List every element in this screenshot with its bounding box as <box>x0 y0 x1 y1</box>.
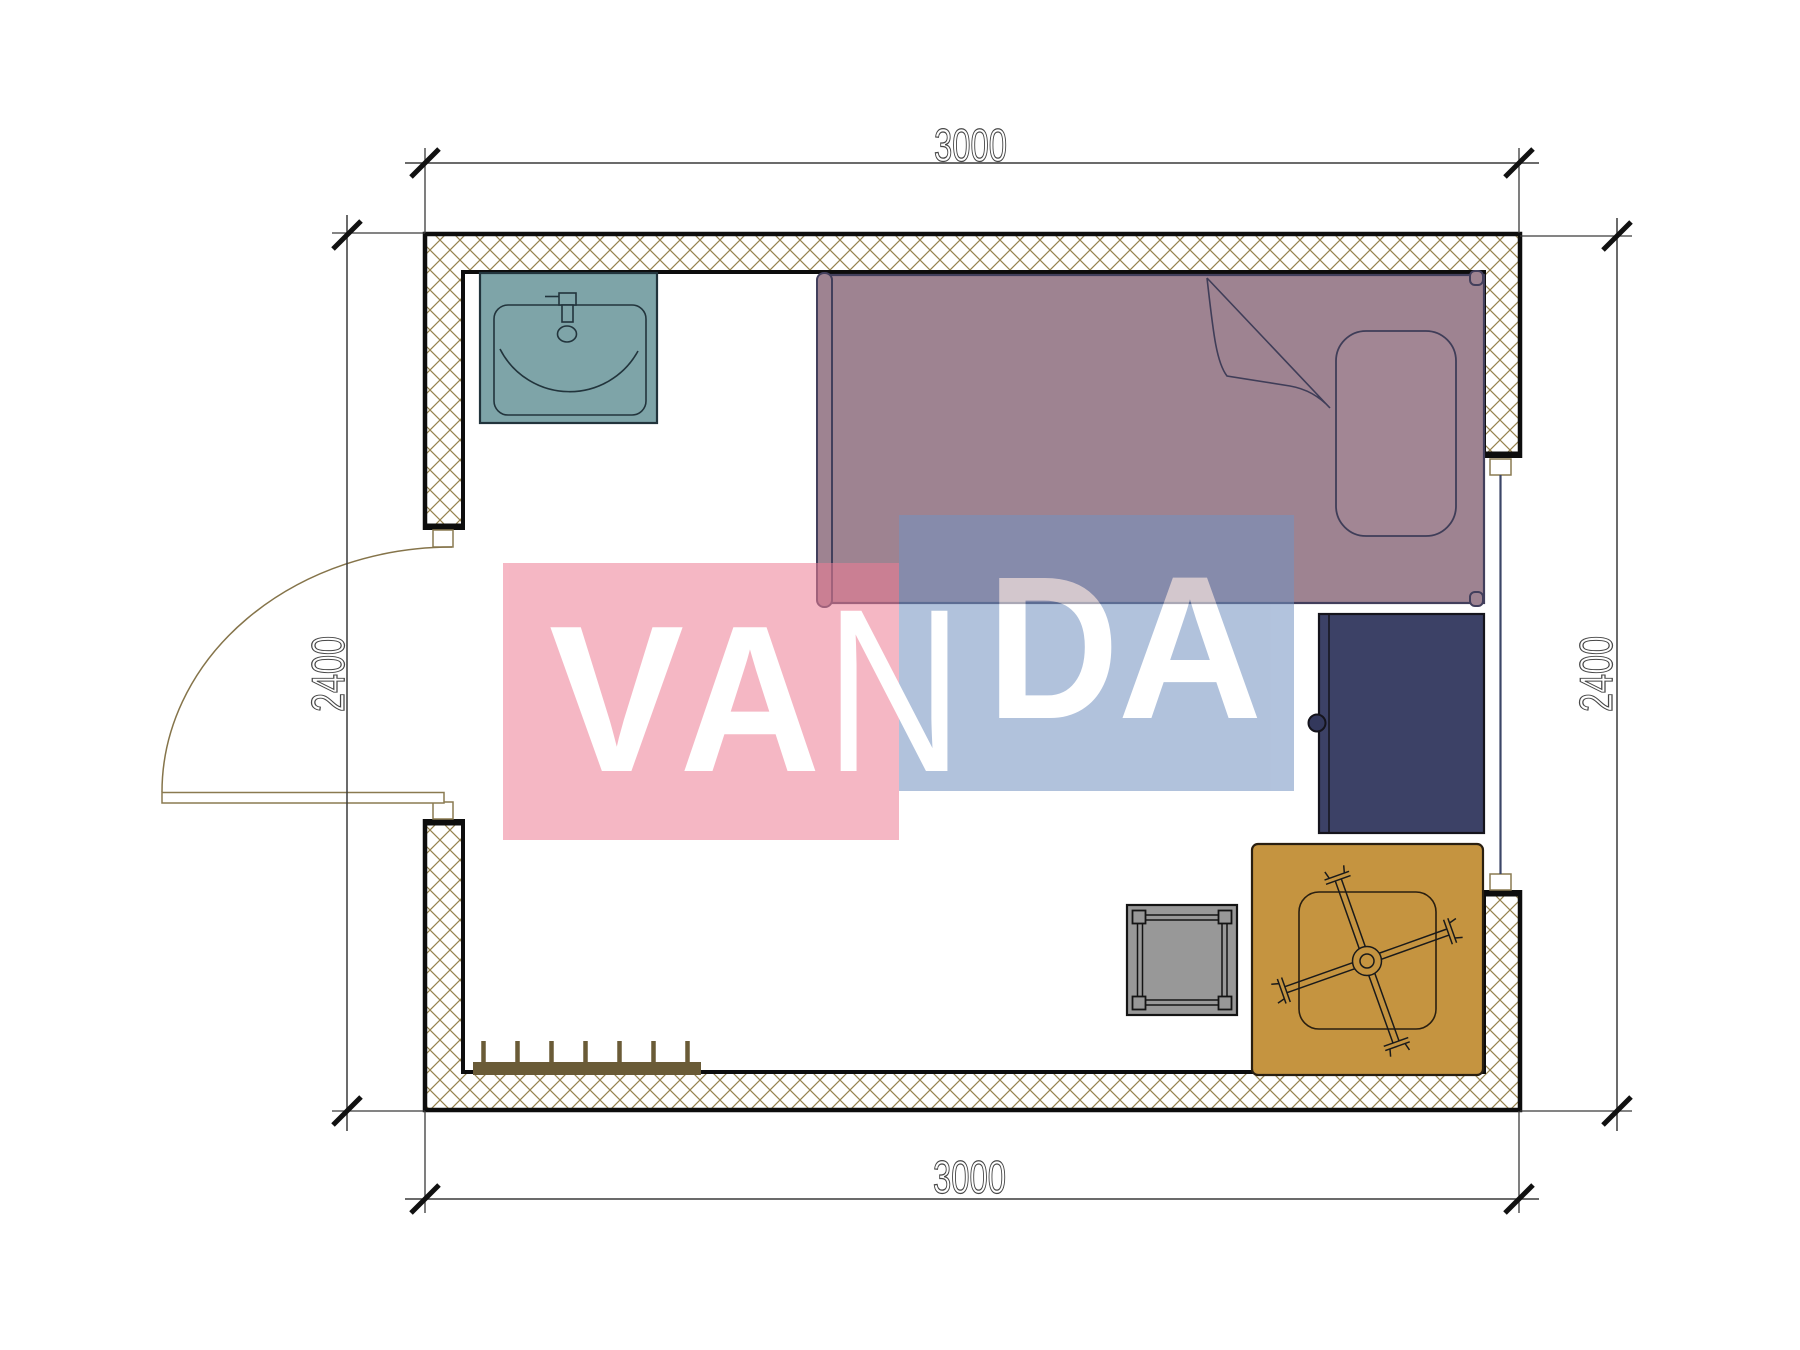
svg-text:3000: 3000 <box>934 119 1007 171</box>
svg-text:N: N <box>825 561 963 821</box>
svg-text:A: A <box>1118 534 1263 762</box>
svg-text:2400: 2400 <box>1570 636 1622 712</box>
svg-text:A: A <box>680 583 821 816</box>
svg-text:2400: 2400 <box>302 636 354 712</box>
svg-text:V: V <box>549 583 684 816</box>
svg-text:D: D <box>987 535 1119 762</box>
svg-text:3000: 3000 <box>933 1151 1006 1203</box>
